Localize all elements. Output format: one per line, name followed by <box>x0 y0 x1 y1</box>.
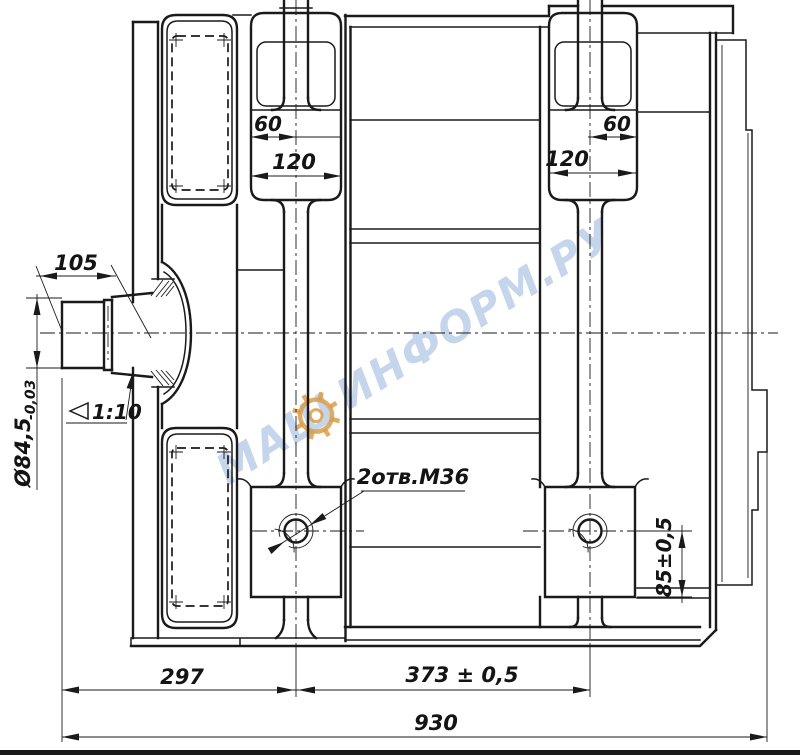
dim-top-right-60: 60 <box>603 112 631 136</box>
end-shield-and-terminal-boxes <box>131 8 345 646</box>
dim-shaft-length: 105 <box>54 251 98 275</box>
watermark: МАШ ИНФОРМ.РУ <box>207 209 624 495</box>
dim-373: 373 ± 0,5 <box>405 663 518 687</box>
dim-shaft-diameter-tolerance: -0,03 <box>23 380 39 420</box>
threaded-hole-left <box>275 514 313 552</box>
dim-top-right-120: 120 <box>545 147 589 171</box>
arrowheads <box>34 134 768 741</box>
taper-symbol-icon <box>70 403 88 419</box>
dim-holes-label: 2отв.М36 <box>357 465 470 489</box>
dim-930: 930 <box>414 711 458 735</box>
dim-taper: 1:10 <box>92 400 142 424</box>
dim-shaft-diameter: Ø84,5 <box>11 417 35 488</box>
motor-drawing-canvas: МАШ ИНФОРМ.РУ <box>0 0 800 755</box>
dim-top-left-60: 60 <box>254 112 282 136</box>
threaded-hole-right <box>569 514 607 552</box>
fan-cover-profile <box>716 40 767 585</box>
dim-top-left-120: 120 <box>272 150 316 174</box>
page-edge <box>0 750 800 755</box>
technical-drawing-page: МАШ ИНФОРМ.РУ <box>0 0 800 755</box>
dim-297: 297 <box>160 665 204 689</box>
dim-pad-height: 85±0,5 <box>652 517 676 597</box>
